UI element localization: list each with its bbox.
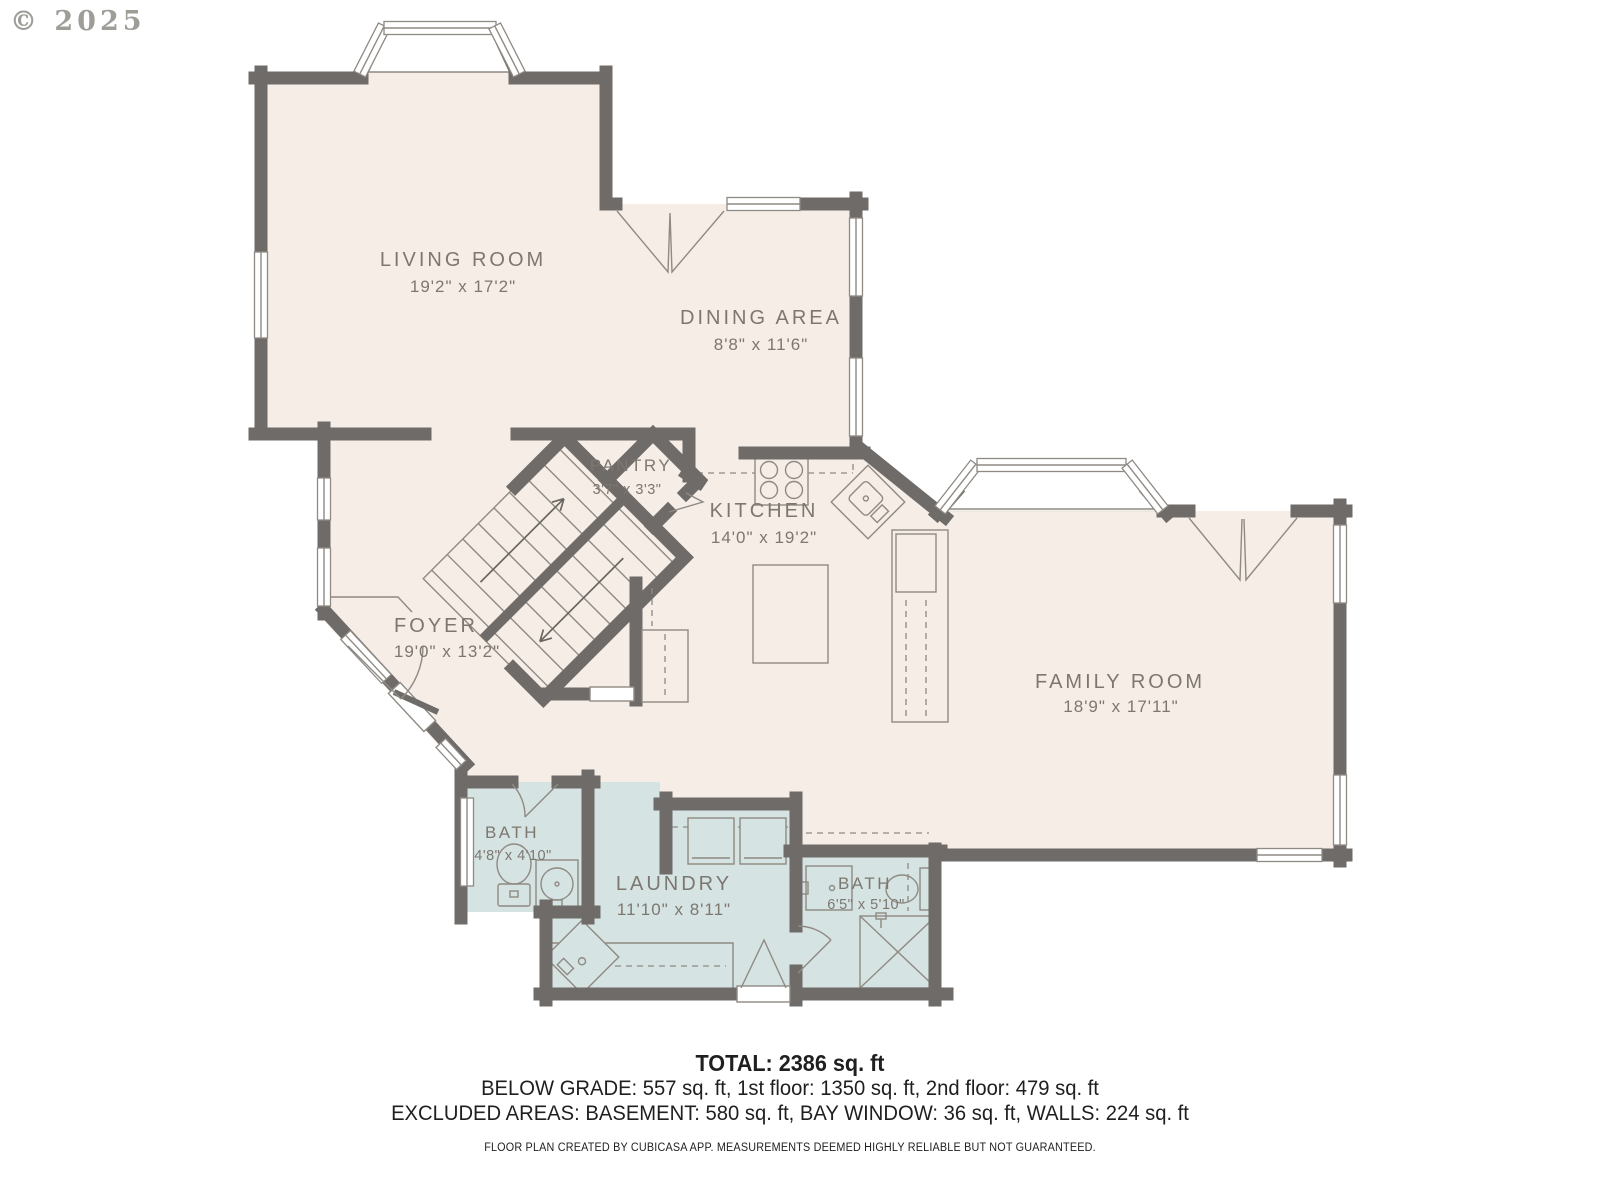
disclaimer-text: FLOOR PLAN CREATED BY CUBICASA APP. MEAS… xyxy=(47,1142,1532,1154)
window-family-right-1 xyxy=(1334,525,1347,603)
dims-foyer: 19'0" x 13'2" xyxy=(394,642,500,661)
label-bath1: BATH xyxy=(485,823,539,842)
landing-doorway-threshold xyxy=(590,687,634,701)
window-bay-family-top xyxy=(977,459,1126,472)
dims-dining-area: 8'8" x 11'6" xyxy=(714,335,809,354)
dryer xyxy=(740,818,786,864)
dims-laundry: 11'10" x 8'11" xyxy=(617,900,731,919)
window-dining-right-1 xyxy=(850,218,863,296)
floor-plan-page: © 2025 xyxy=(0,0,1600,1200)
dims-living-room: 19'2" x 17'2" xyxy=(410,277,516,296)
label-pantry: PANTRY xyxy=(590,456,672,475)
label-living-room: LIVING ROOM xyxy=(380,249,546,271)
window-bath1-left xyxy=(461,798,474,886)
dims-kitchen: 14'0" x 19'2" xyxy=(711,528,817,547)
dims-bath2: 6'5" x 5'10" xyxy=(827,897,904,913)
room-bath1-floor xyxy=(461,782,588,912)
label-laundry: LAUNDRY xyxy=(616,873,732,895)
label-foyer: FOYER xyxy=(394,615,478,637)
window-family-right-2 xyxy=(1334,775,1347,845)
window-dining-top xyxy=(727,198,800,211)
window-dining-right-2 xyxy=(850,358,863,436)
excluded-areas-line: EXCLUDED AREAS: BASEMENT: 580 sq. ft, BA… xyxy=(47,1101,1532,1126)
dims-bath1: 4'8" x 4'10" xyxy=(474,848,551,864)
window-foyer-left-2 xyxy=(318,548,331,606)
washer xyxy=(688,818,734,864)
copyright-watermark: © 2025 xyxy=(10,6,146,37)
dims-pantry: 3'7" x 3'3" xyxy=(593,482,662,498)
area-summary: TOTAL: 2386 sq. ft BELOW GRADE: 557 sq. … xyxy=(47,1050,1532,1154)
window-living-left xyxy=(255,252,268,338)
window-bay-living-top xyxy=(384,22,496,35)
floor-plan: LIVING ROOM 19'2" x 17'2" DINING AREA 8'… xyxy=(0,0,1600,1040)
window-foyer-left-1 xyxy=(318,478,331,520)
label-bath2: BATH xyxy=(838,874,892,893)
area-breakdown-line: BELOW GRADE: 557 sq. ft, 1st floor: 1350… xyxy=(47,1076,1532,1101)
dims-family-room: 18'9" x 17'11" xyxy=(1063,697,1178,716)
label-kitchen: KITCHEN xyxy=(710,500,819,522)
total-area: TOTAL: 2386 sq. ft xyxy=(47,1050,1532,1076)
window-family-bottom xyxy=(1257,849,1322,862)
label-dining-area: DINING AREA xyxy=(680,307,842,329)
label-family-room: FAMILY ROOM xyxy=(1035,671,1205,693)
